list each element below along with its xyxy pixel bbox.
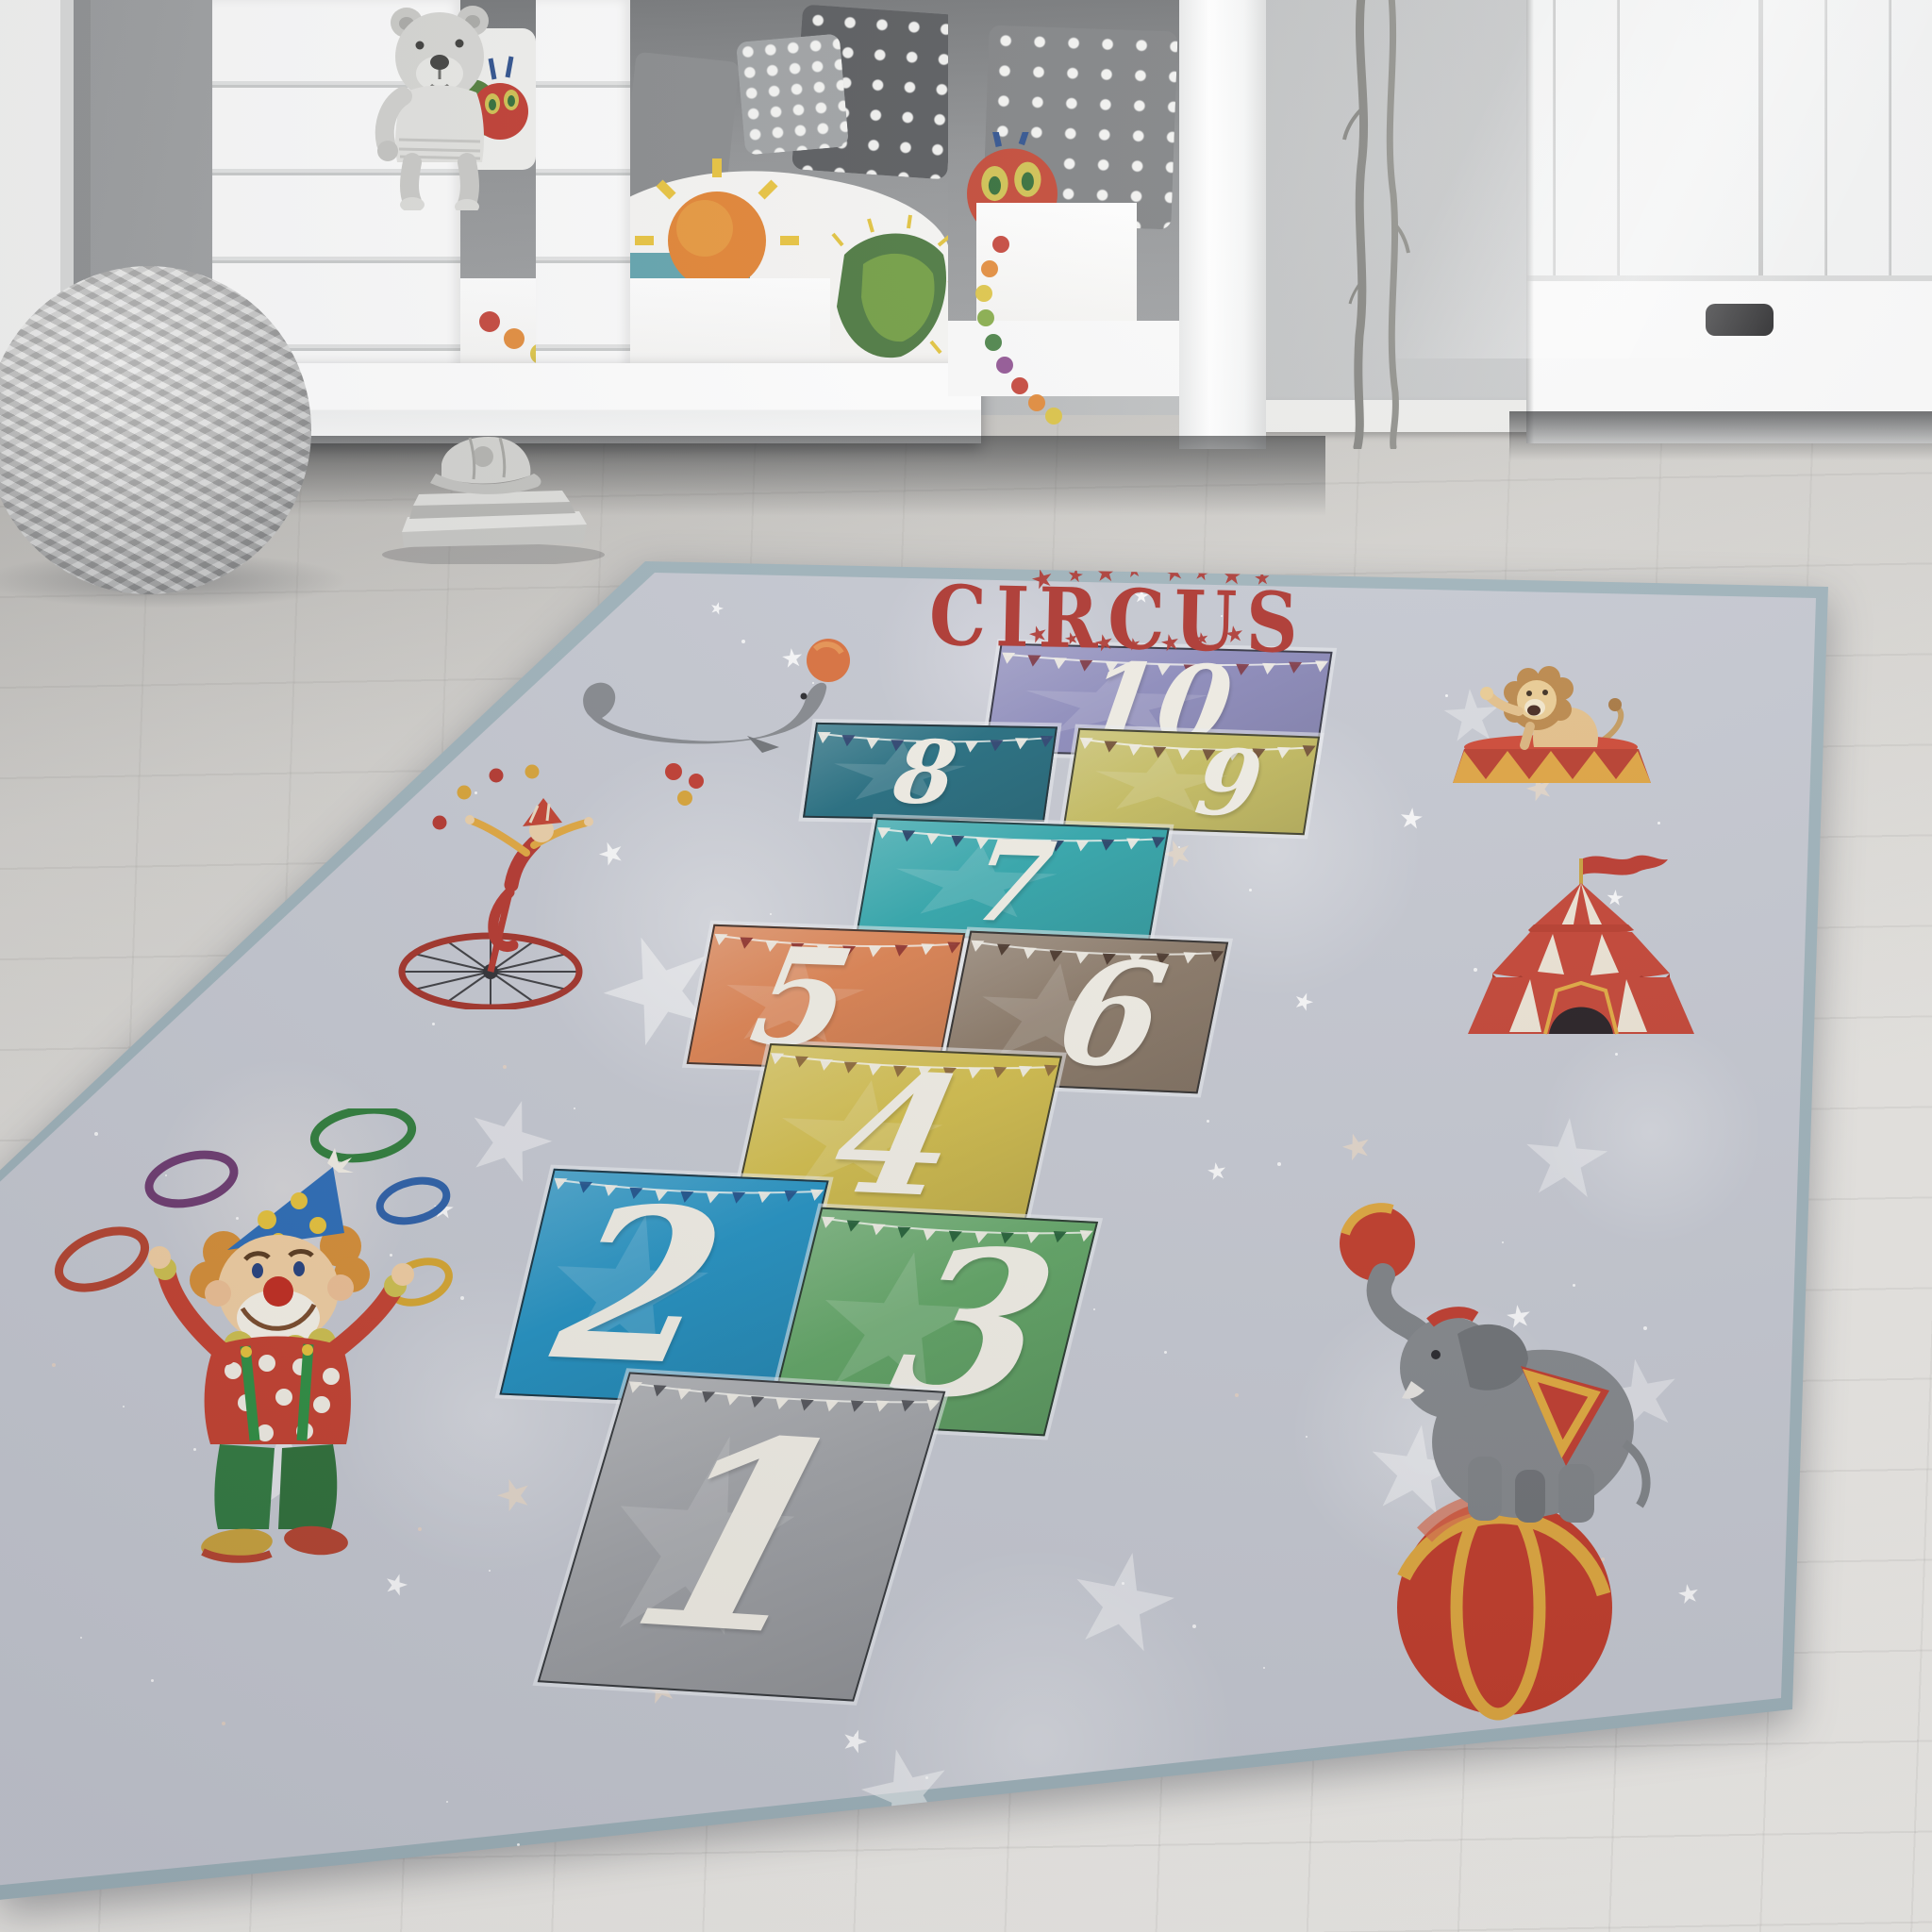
duvet-dot bbox=[1045, 408, 1062, 425]
bed-opening-right bbox=[948, 0, 1179, 396]
duvet-dot bbox=[479, 311, 500, 332]
lion-on-podium-illustration bbox=[1445, 653, 1657, 794]
duvet-dot bbox=[992, 236, 1009, 253]
speckle bbox=[1178, 846, 1180, 848]
door-groove bbox=[1889, 0, 1891, 275]
speckle bbox=[1235, 1393, 1239, 1397]
duvet-dot bbox=[981, 260, 998, 277]
speckle bbox=[1192, 1624, 1196, 1628]
speckle bbox=[432, 1023, 435, 1025]
door-gap bbox=[1758, 0, 1763, 275]
rug-title: CIRCUS bbox=[928, 567, 1308, 672]
speckle bbox=[1657, 822, 1660, 824]
elephant-on-ball-illustration bbox=[1283, 1181, 1679, 1724]
hopscotch-square-7: 7 bbox=[856, 818, 1170, 944]
door-groove bbox=[1824, 0, 1827, 275]
speckle bbox=[517, 1843, 520, 1846]
book-stack-with-cap bbox=[375, 423, 611, 564]
circus-tent-illustration bbox=[1451, 849, 1715, 1066]
speckle bbox=[151, 1679, 154, 1682]
duvet-dot bbox=[985, 334, 1002, 351]
speckle bbox=[1249, 889, 1252, 891]
speckle bbox=[855, 1734, 857, 1736]
bed-base bbox=[948, 321, 1179, 396]
photo-scene: 10 8 9 7 5 6 4 2 3 1 CIRCUS bbox=[0, 0, 1932, 1932]
drawer-handle[interactable] bbox=[1706, 304, 1774, 336]
duvet-dot bbox=[504, 328, 525, 349]
speckle bbox=[925, 1776, 928, 1779]
white-wardrobe bbox=[1526, 0, 1932, 443]
speckle bbox=[460, 1296, 464, 1300]
duvet-dot bbox=[977, 309, 994, 326]
knitted-pouf bbox=[0, 266, 311, 594]
speckle bbox=[80, 1637, 82, 1639]
juggler-on-unicycle-illustration bbox=[385, 743, 710, 1009]
speckle bbox=[446, 1801, 448, 1803]
bed-corner-post bbox=[1179, 0, 1266, 449]
duvet-dot bbox=[1011, 377, 1028, 394]
polka-dot-pillow-light bbox=[736, 33, 849, 155]
wardrobe-edge-shadow bbox=[1526, 0, 1534, 443]
decorative-branches bbox=[1307, 0, 1429, 449]
speckle bbox=[1164, 1351, 1167, 1354]
speckle bbox=[1207, 1120, 1209, 1123]
duvet-dot bbox=[1028, 394, 1045, 411]
door-groove bbox=[1553, 0, 1556, 275]
speckle bbox=[1093, 1308, 1095, 1310]
door-groove bbox=[1617, 0, 1620, 275]
speckle bbox=[222, 1722, 225, 1725]
speckle bbox=[1122, 1582, 1124, 1585]
speckle bbox=[1277, 1162, 1281, 1166]
speckle bbox=[503, 1065, 507, 1069]
clown-with-rings-illustration bbox=[52, 1108, 458, 1580]
duvet-dot bbox=[996, 357, 1013, 374]
speckle bbox=[770, 913, 772, 915]
speckle bbox=[574, 1108, 575, 1109]
wardrobe-shadow bbox=[1509, 411, 1932, 460]
hopscotch-square-9: 9 bbox=[1063, 728, 1320, 835]
bed-post-plank bbox=[536, 0, 630, 396]
duvet-dot bbox=[975, 285, 992, 302]
speckle bbox=[489, 1570, 491, 1572]
speckle bbox=[1263, 1667, 1265, 1669]
teddy-bear bbox=[357, 0, 519, 210]
wardrobe-drawer[interactable] bbox=[1526, 275, 1932, 413]
